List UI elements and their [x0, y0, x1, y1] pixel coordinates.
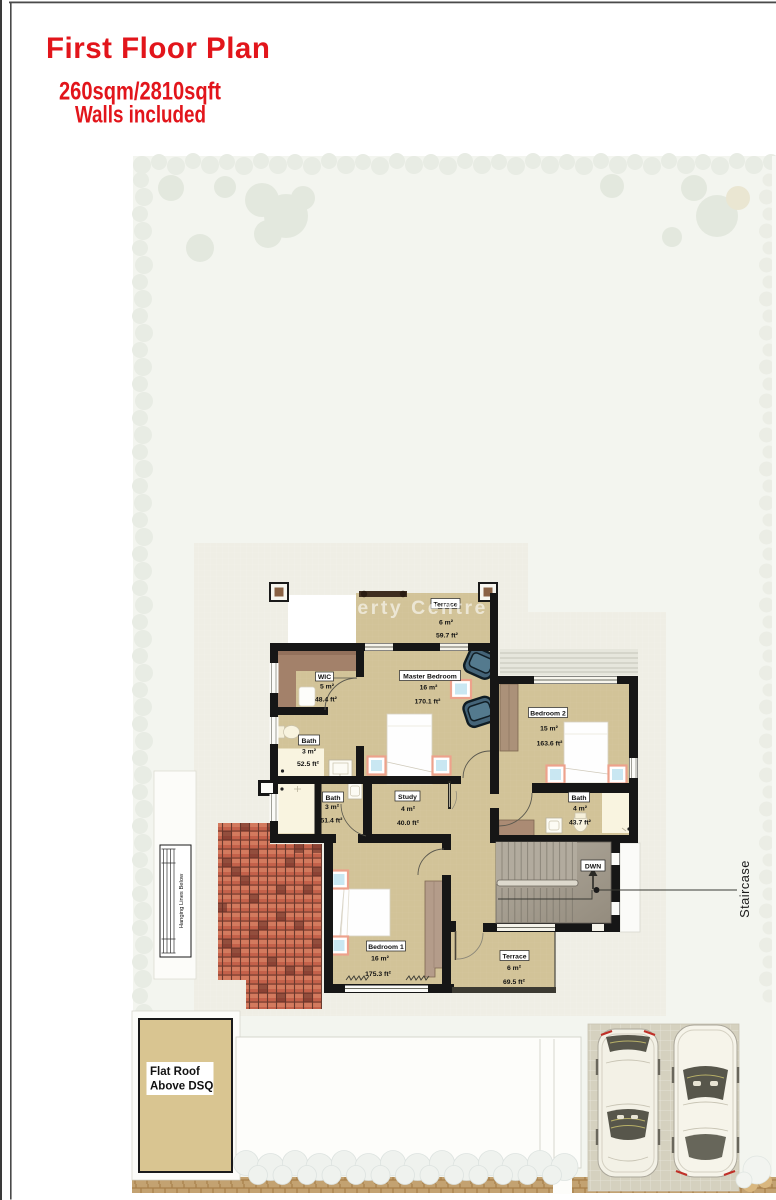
svg-text:59.7 ft²: 59.7 ft²	[436, 633, 459, 640]
svg-text:First Floor Plan: First Floor Plan	[46, 32, 270, 65]
svg-text:Hanging Lines Below: Hanging Lines Below	[179, 873, 185, 928]
svg-text:15 m²: 15 m²	[540, 726, 558, 733]
svg-text:6 m²: 6 m²	[507, 965, 522, 972]
svg-text:43.7 ft²: 43.7 ft²	[569, 820, 592, 827]
svg-text:3 m²: 3 m²	[302, 749, 317, 756]
svg-text:48.4 ft²: 48.4 ft²	[315, 697, 338, 704]
svg-text:Study: Study	[398, 794, 417, 801]
svg-text:Property Centre: Property Centre	[303, 597, 488, 619]
svg-text:Above DSQ: Above DSQ	[150, 1081, 213, 1093]
svg-text:Bath: Bath	[571, 795, 586, 802]
svg-text:Master Bedroom: Master Bedroom	[403, 673, 457, 680]
svg-text:51.4 ft²: 51.4 ft²	[321, 818, 344, 825]
svg-text:40.0 ft²: 40.0 ft²	[397, 820, 420, 827]
svg-text:4 m²: 4 m²	[401, 806, 416, 813]
svg-text:6 m²: 6 m²	[439, 620, 454, 627]
svg-text:170.1 ft²: 170.1 ft²	[415, 699, 441, 706]
svg-text:WIC: WIC	[318, 674, 331, 681]
svg-text:Walls included: Walls included	[75, 102, 206, 129]
svg-text:Bedroom 2: Bedroom 2	[530, 710, 566, 717]
svg-text:Terrace: Terrace	[502, 953, 526, 960]
svg-text:Flat Roof: Flat Roof	[150, 1066, 200, 1078]
svg-text:Bedroom 1: Bedroom 1	[368, 944, 404, 951]
svg-text:69.5 ft²: 69.5 ft²	[503, 979, 526, 986]
svg-text:DWN: DWN	[585, 863, 601, 870]
svg-text:175.3 ft²: 175.3 ft²	[365, 971, 391, 978]
svg-text:16 m²: 16 m²	[371, 956, 389, 963]
svg-text:5 m²: 5 m²	[320, 684, 335, 691]
svg-text:3 m²: 3 m²	[325, 804, 340, 811]
svg-text:4 m²: 4 m²	[573, 806, 588, 813]
svg-text:163.6 ft²: 163.6 ft²	[537, 741, 563, 748]
svg-text:Bath: Bath	[301, 738, 316, 745]
svg-text:Bath: Bath	[325, 795, 340, 802]
svg-text:52.5 ft²: 52.5 ft²	[297, 761, 320, 768]
svg-text:16 m²: 16 m²	[420, 685, 438, 692]
svg-text:Staircase: Staircase	[737, 860, 752, 918]
